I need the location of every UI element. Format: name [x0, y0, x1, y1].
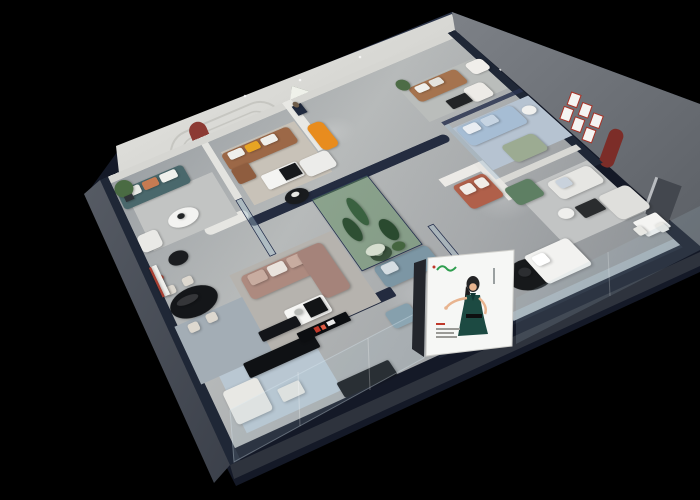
front-glass-wall-left: [230, 310, 424, 462]
poster-text-red-line: [436, 323, 445, 325]
plinth-face-left: [84, 180, 230, 483]
poster-text-line-b: [436, 332, 454, 334]
billboard-woman-poster: [426, 250, 514, 356]
billboard-side-panel: [412, 259, 426, 357]
poster-vertical-text-mark: [493, 268, 495, 284]
woman-face: [469, 283, 477, 291]
poster-text-line-a: [436, 328, 460, 330]
foreground-overlay: [0, 0, 700, 500]
woman-belt: [466, 314, 482, 318]
woman-hand: [444, 306, 448, 310]
showroom-render: Isometric cutaway 3D render of a furnitu…: [0, 0, 700, 500]
poster-logo-red-dot: [433, 266, 436, 269]
poster-text-line-c: [436, 336, 457, 338]
